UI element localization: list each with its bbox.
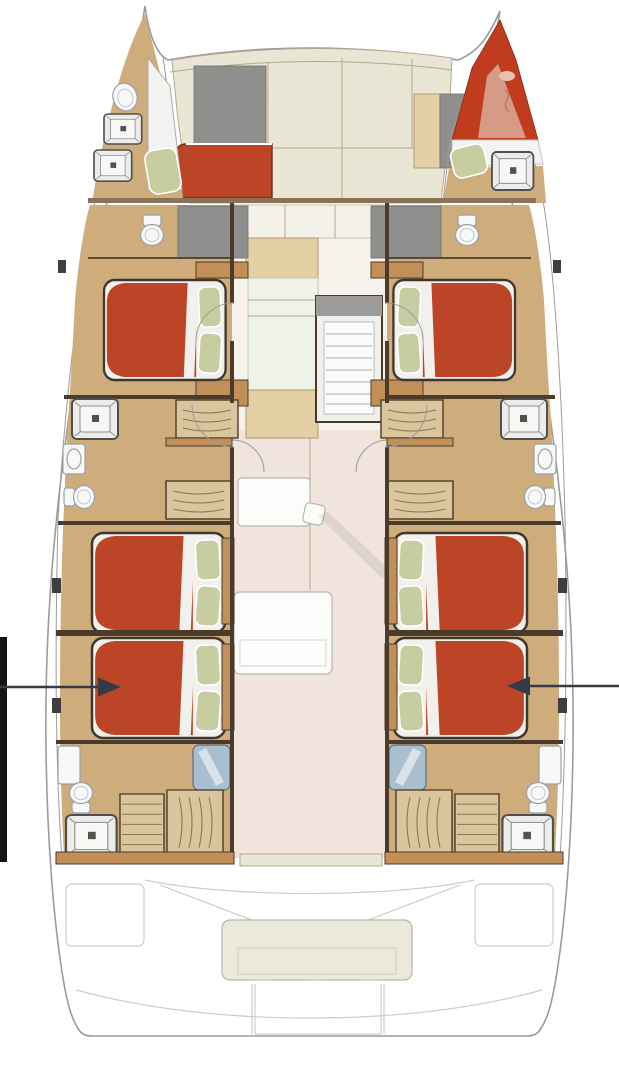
drawer-steps [166, 481, 232, 519]
drawer-steps [176, 400, 238, 438]
shower-icon [193, 745, 230, 790]
forward-bulkhead-band [88, 198, 536, 203]
double-berth [104, 280, 226, 380]
deck-hatch-icon [94, 150, 132, 181]
catamaran-floor-plan [0, 0, 619, 1080]
berth-detail [499, 71, 515, 81]
inner-wall [230, 341, 234, 403]
deck-hatch-icon [104, 114, 142, 144]
deck-hatch-icon [66, 815, 117, 857]
forward-cabinetry [234, 205, 388, 238]
aft-cabin-forward [92, 533, 234, 633]
headboard-shelf [196, 262, 248, 278]
deck-hatch-icon [72, 399, 118, 439]
bulkhead [58, 521, 232, 525]
porthole-mark [52, 698, 61, 713]
foredeck [142, 48, 474, 203]
porthole-mark [58, 260, 66, 273]
vanity-cabinet [58, 746, 80, 784]
drawer-steps [167, 790, 223, 855]
double-berth [92, 533, 225, 633]
forward-cockpit-seat-cushion [176, 144, 272, 198]
sink-icon [63, 444, 85, 474]
galley [246, 238, 318, 438]
salon-table [234, 592, 332, 674]
cockpit-door-sill [240, 854, 382, 866]
port-hull-interior [52, 203, 248, 864]
inner-wall [230, 447, 234, 852]
aft-bulkhead-band [56, 852, 234, 864]
shower-compartment [178, 206, 248, 258]
floor-plan-canvas [0, 0, 619, 1080]
inner-wall [230, 203, 234, 303]
left-edge-black-bar [0, 637, 7, 862]
port-bow-compartment [92, 14, 183, 203]
coachroof-window-port [194, 66, 266, 144]
salon [232, 203, 392, 866]
starboard-hull-interior [371, 203, 567, 864]
aft-bench [222, 920, 412, 980]
toilet-icon [64, 486, 95, 509]
coachroof-panel-wood [414, 94, 440, 168]
stool [302, 502, 326, 526]
deck-hatch-icon [492, 152, 533, 190]
bow-seat-cushion [143, 147, 182, 196]
porthole-mark [52, 578, 61, 593]
shelf [166, 438, 232, 446]
bulkhead [56, 740, 232, 744]
toilet-icon [141, 215, 164, 246]
cabin-divider-wall [56, 630, 232, 636]
stairs-down [120, 794, 164, 855]
toilet-icon [70, 783, 93, 814]
